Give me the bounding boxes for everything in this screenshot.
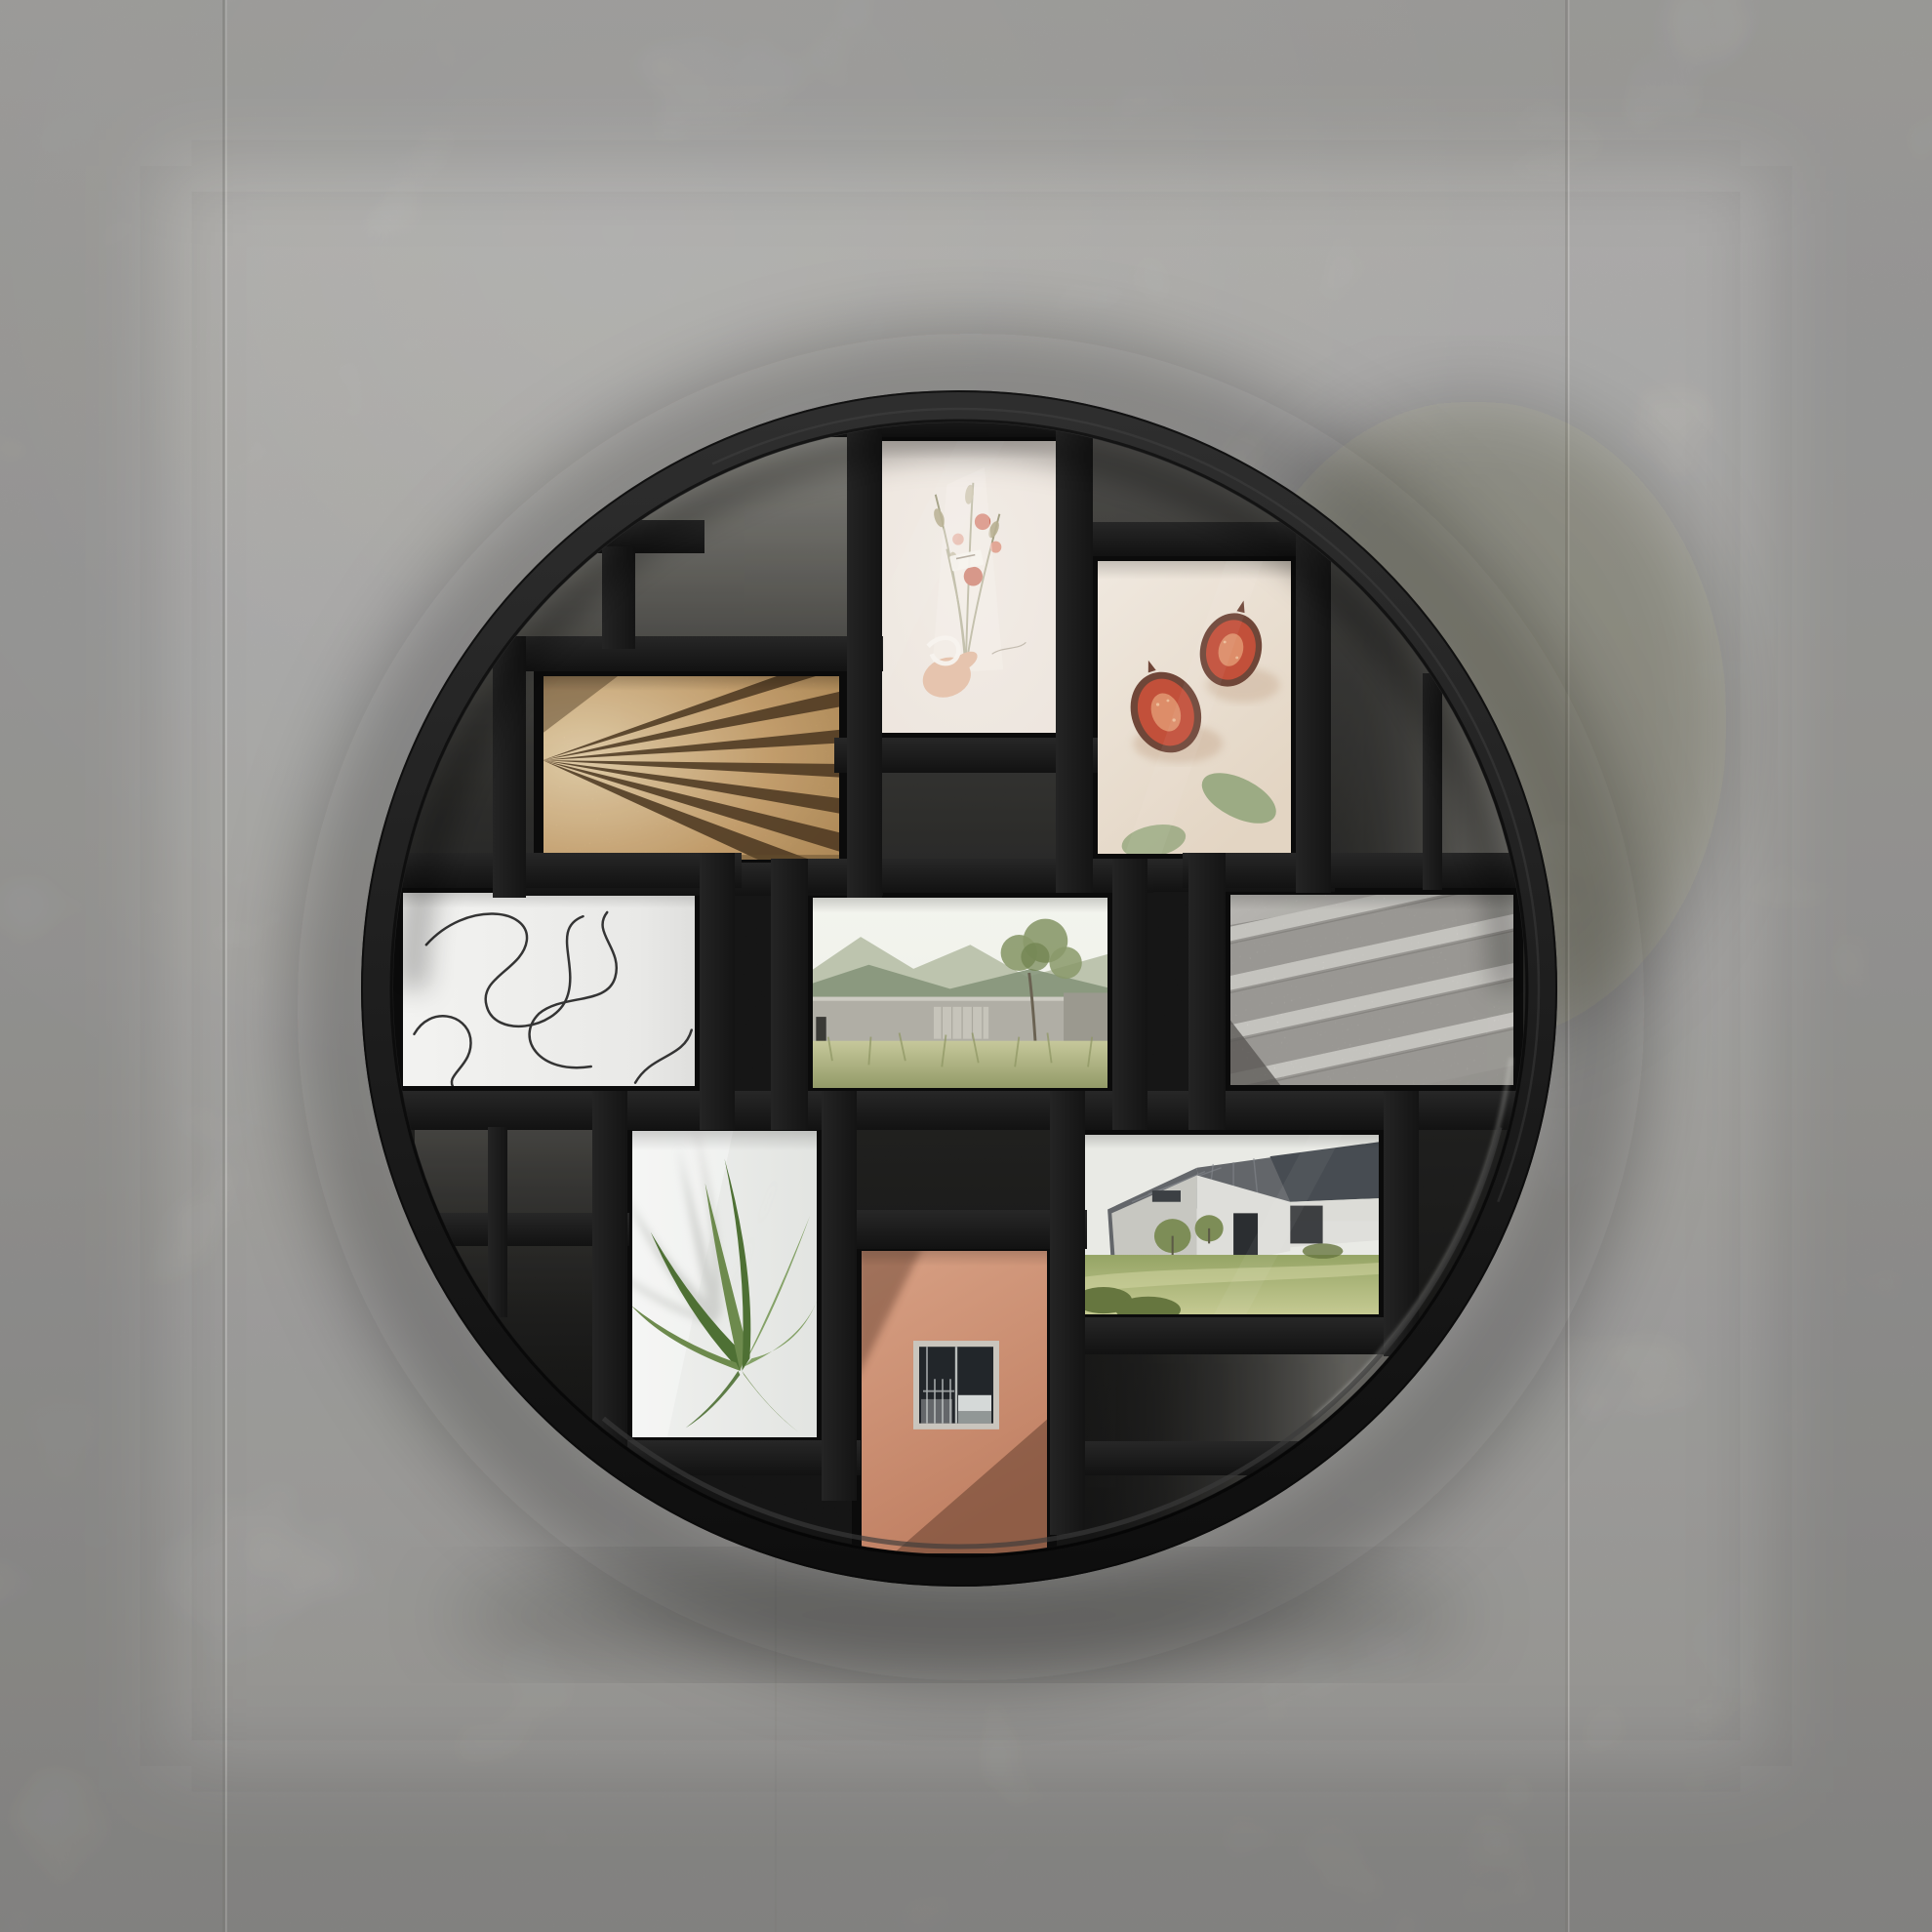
wall-seam-left	[222, 0, 227, 1932]
product-photo-round-collage-frame	[0, 0, 1932, 1932]
photo-line-art	[398, 888, 700, 1091]
photo-figs	[1093, 537, 1296, 888]
photo-palm	[604, 1122, 822, 1442]
photo-modern-house	[1075, 1111, 1384, 1339]
photo-courtyard	[808, 893, 1112, 1093]
photo-orange-facade	[857, 1246, 1052, 1558]
